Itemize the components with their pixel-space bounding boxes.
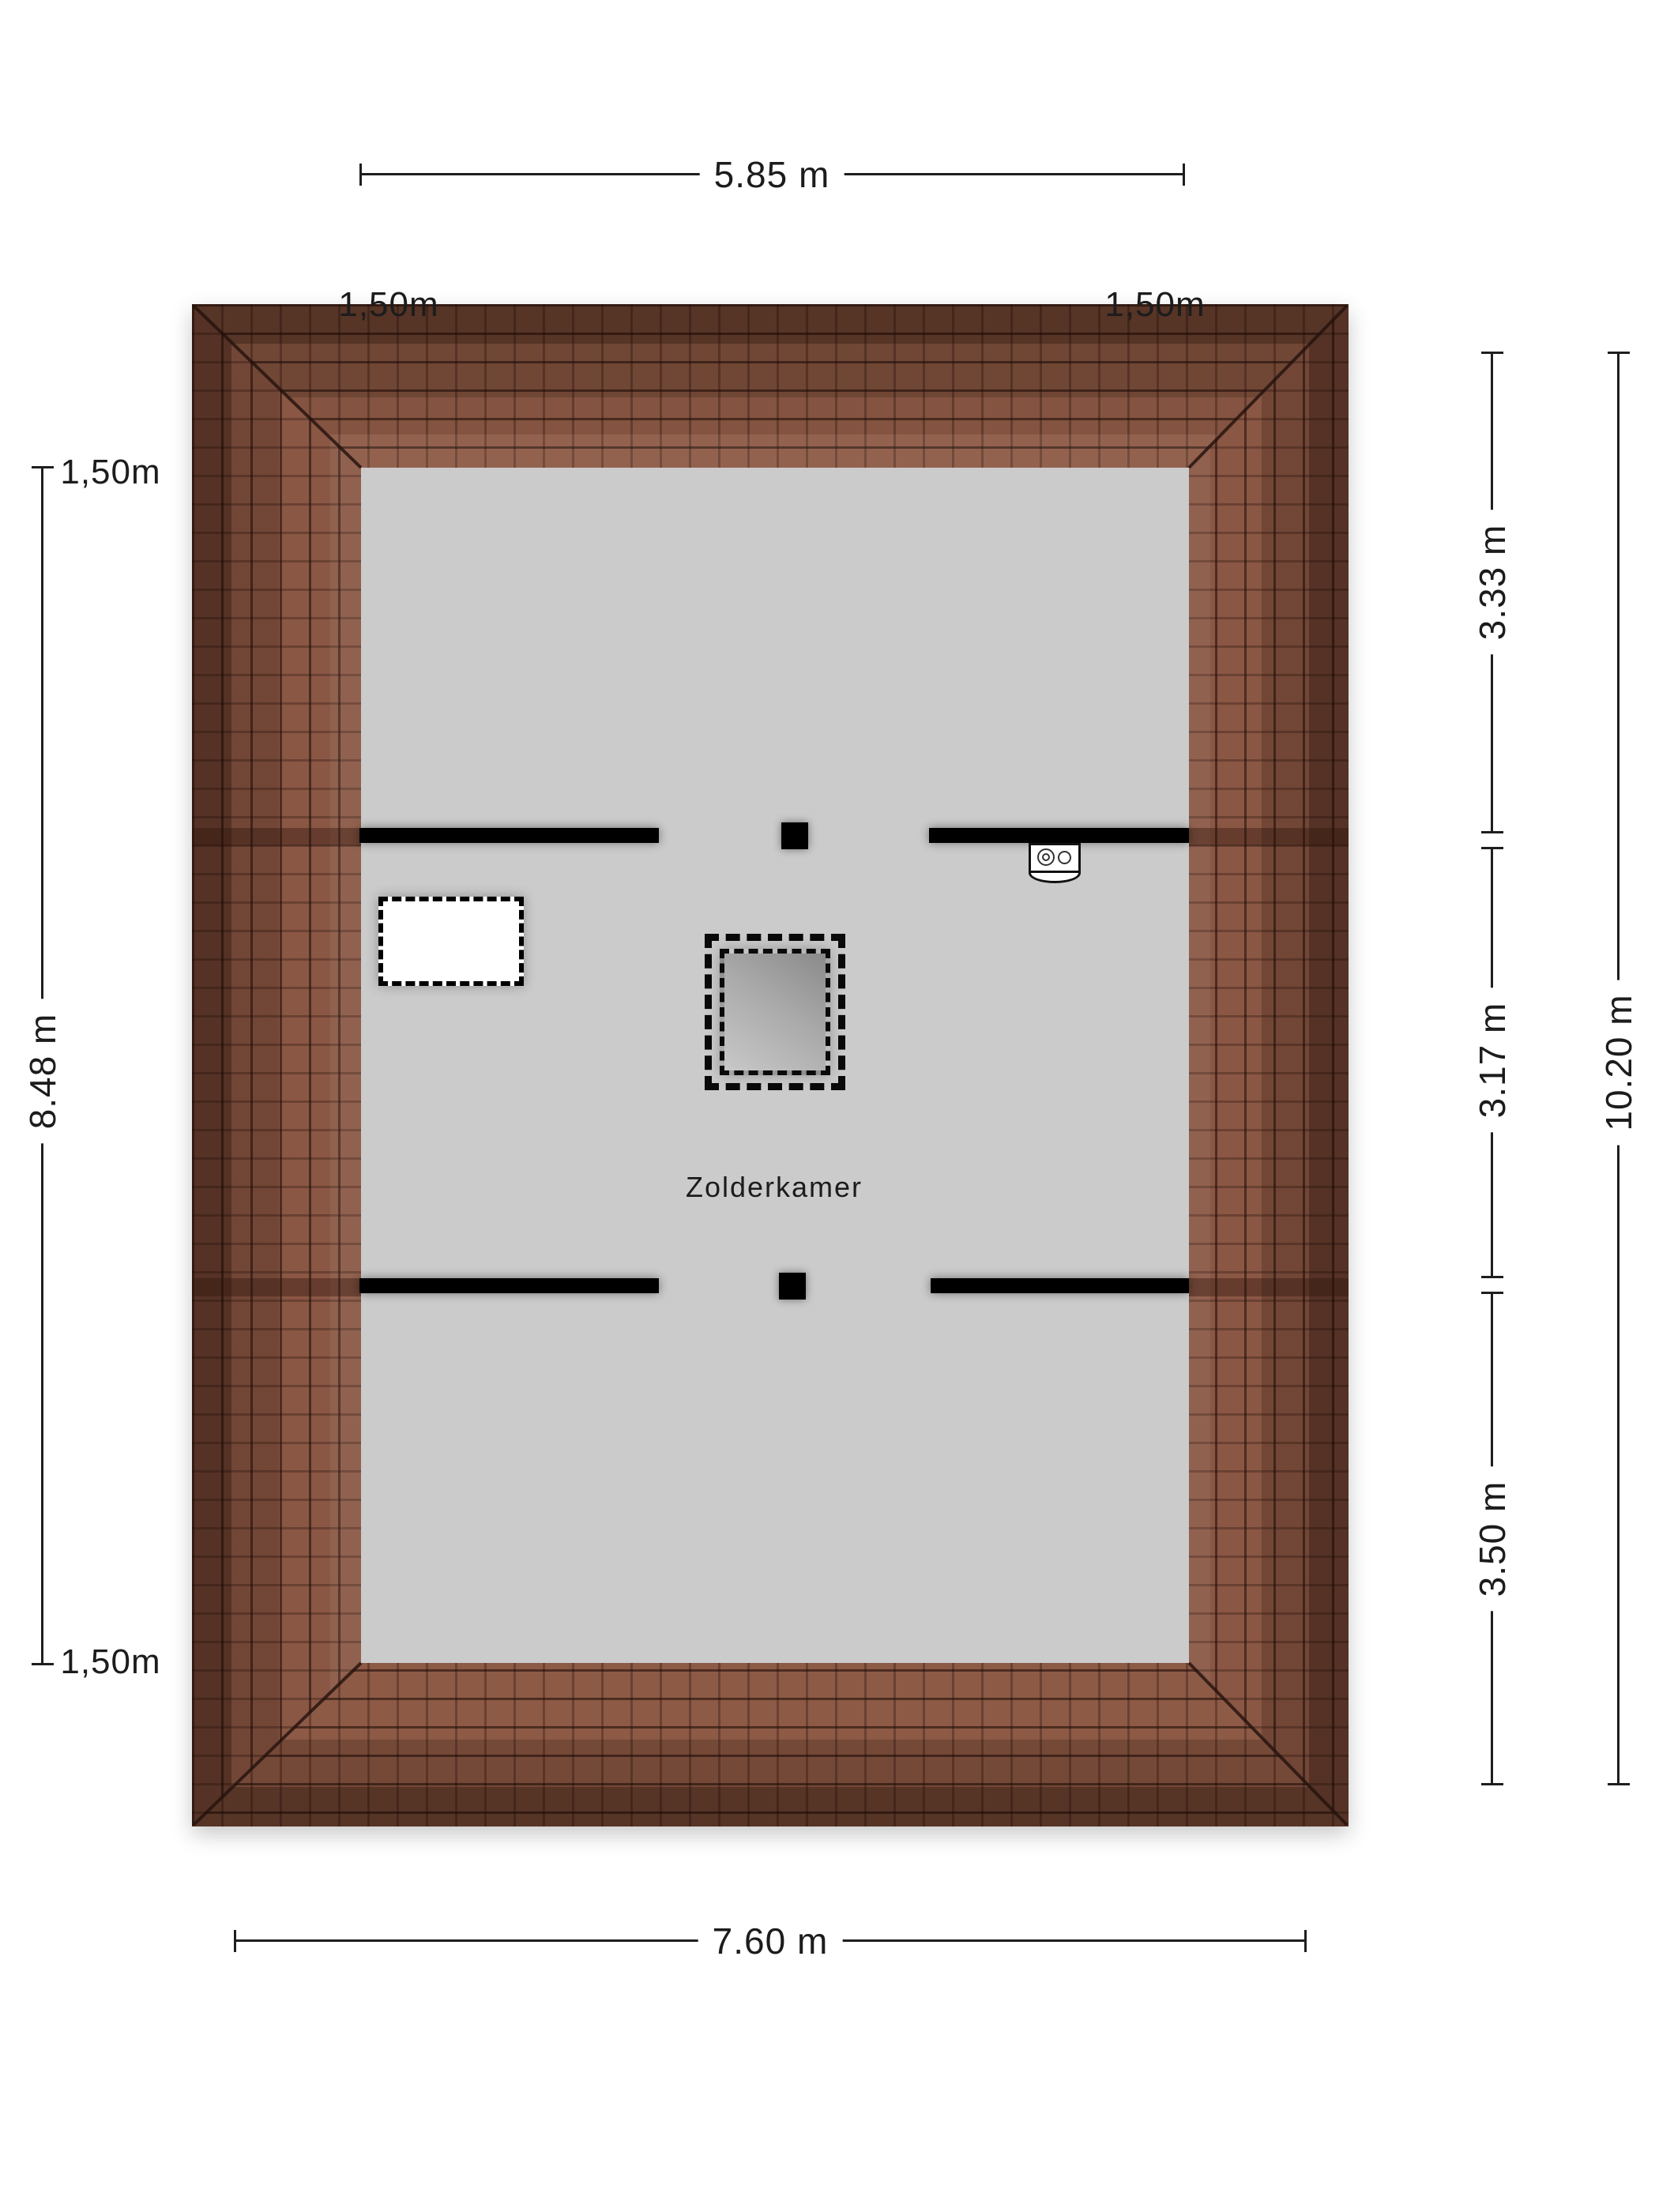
dashed-stair-opening	[705, 934, 845, 1090]
dim-label-top-width: 5.85 m	[700, 150, 845, 199]
wall-post-lower	[779, 1273, 806, 1300]
floorplan-page: { "plan": { "type": "attic-floorplan", "…	[0, 0, 1659, 2212]
cv-boiler-dial-large-icon	[1037, 848, 1055, 866]
dashed-roof-window	[378, 897, 524, 986]
wall-post-upper	[781, 822, 808, 849]
room-label: Zolderkamer	[686, 1171, 863, 1204]
dim-label-overhang-left-top: 1,50m	[60, 453, 160, 492]
dim-label-bottom-width: 7.60 m	[698, 1917, 843, 1966]
dim-label-right-segment-middle: 3.17 m	[1468, 988, 1517, 1133]
cv-boiler-dial-small-icon	[1058, 851, 1071, 864]
stair-opening-inner	[720, 949, 830, 1075]
dim-label-left-height: 8.48 m	[18, 999, 67, 1144]
dim-label-right-segment-top: 3.33 m	[1468, 510, 1517, 655]
wall-upper-left	[359, 828, 659, 843]
cv-boiler-icon	[1029, 843, 1081, 873]
dim-label-right-segment-bottom: 3.50 m	[1468, 1467, 1517, 1612]
wall-lower-left	[359, 1278, 659, 1293]
wall-upper-right	[929, 828, 1189, 843]
wall-lower-right	[931, 1278, 1189, 1293]
dim-label-right-total: 10.20 m	[1594, 980, 1643, 1145]
dim-label-overhang-top-right: 1,50m	[1104, 285, 1205, 325]
dim-label-overhang-left-bottom: 1,50m	[60, 1642, 160, 1682]
dim-label-overhang-top-left: 1,50m	[338, 285, 438, 325]
